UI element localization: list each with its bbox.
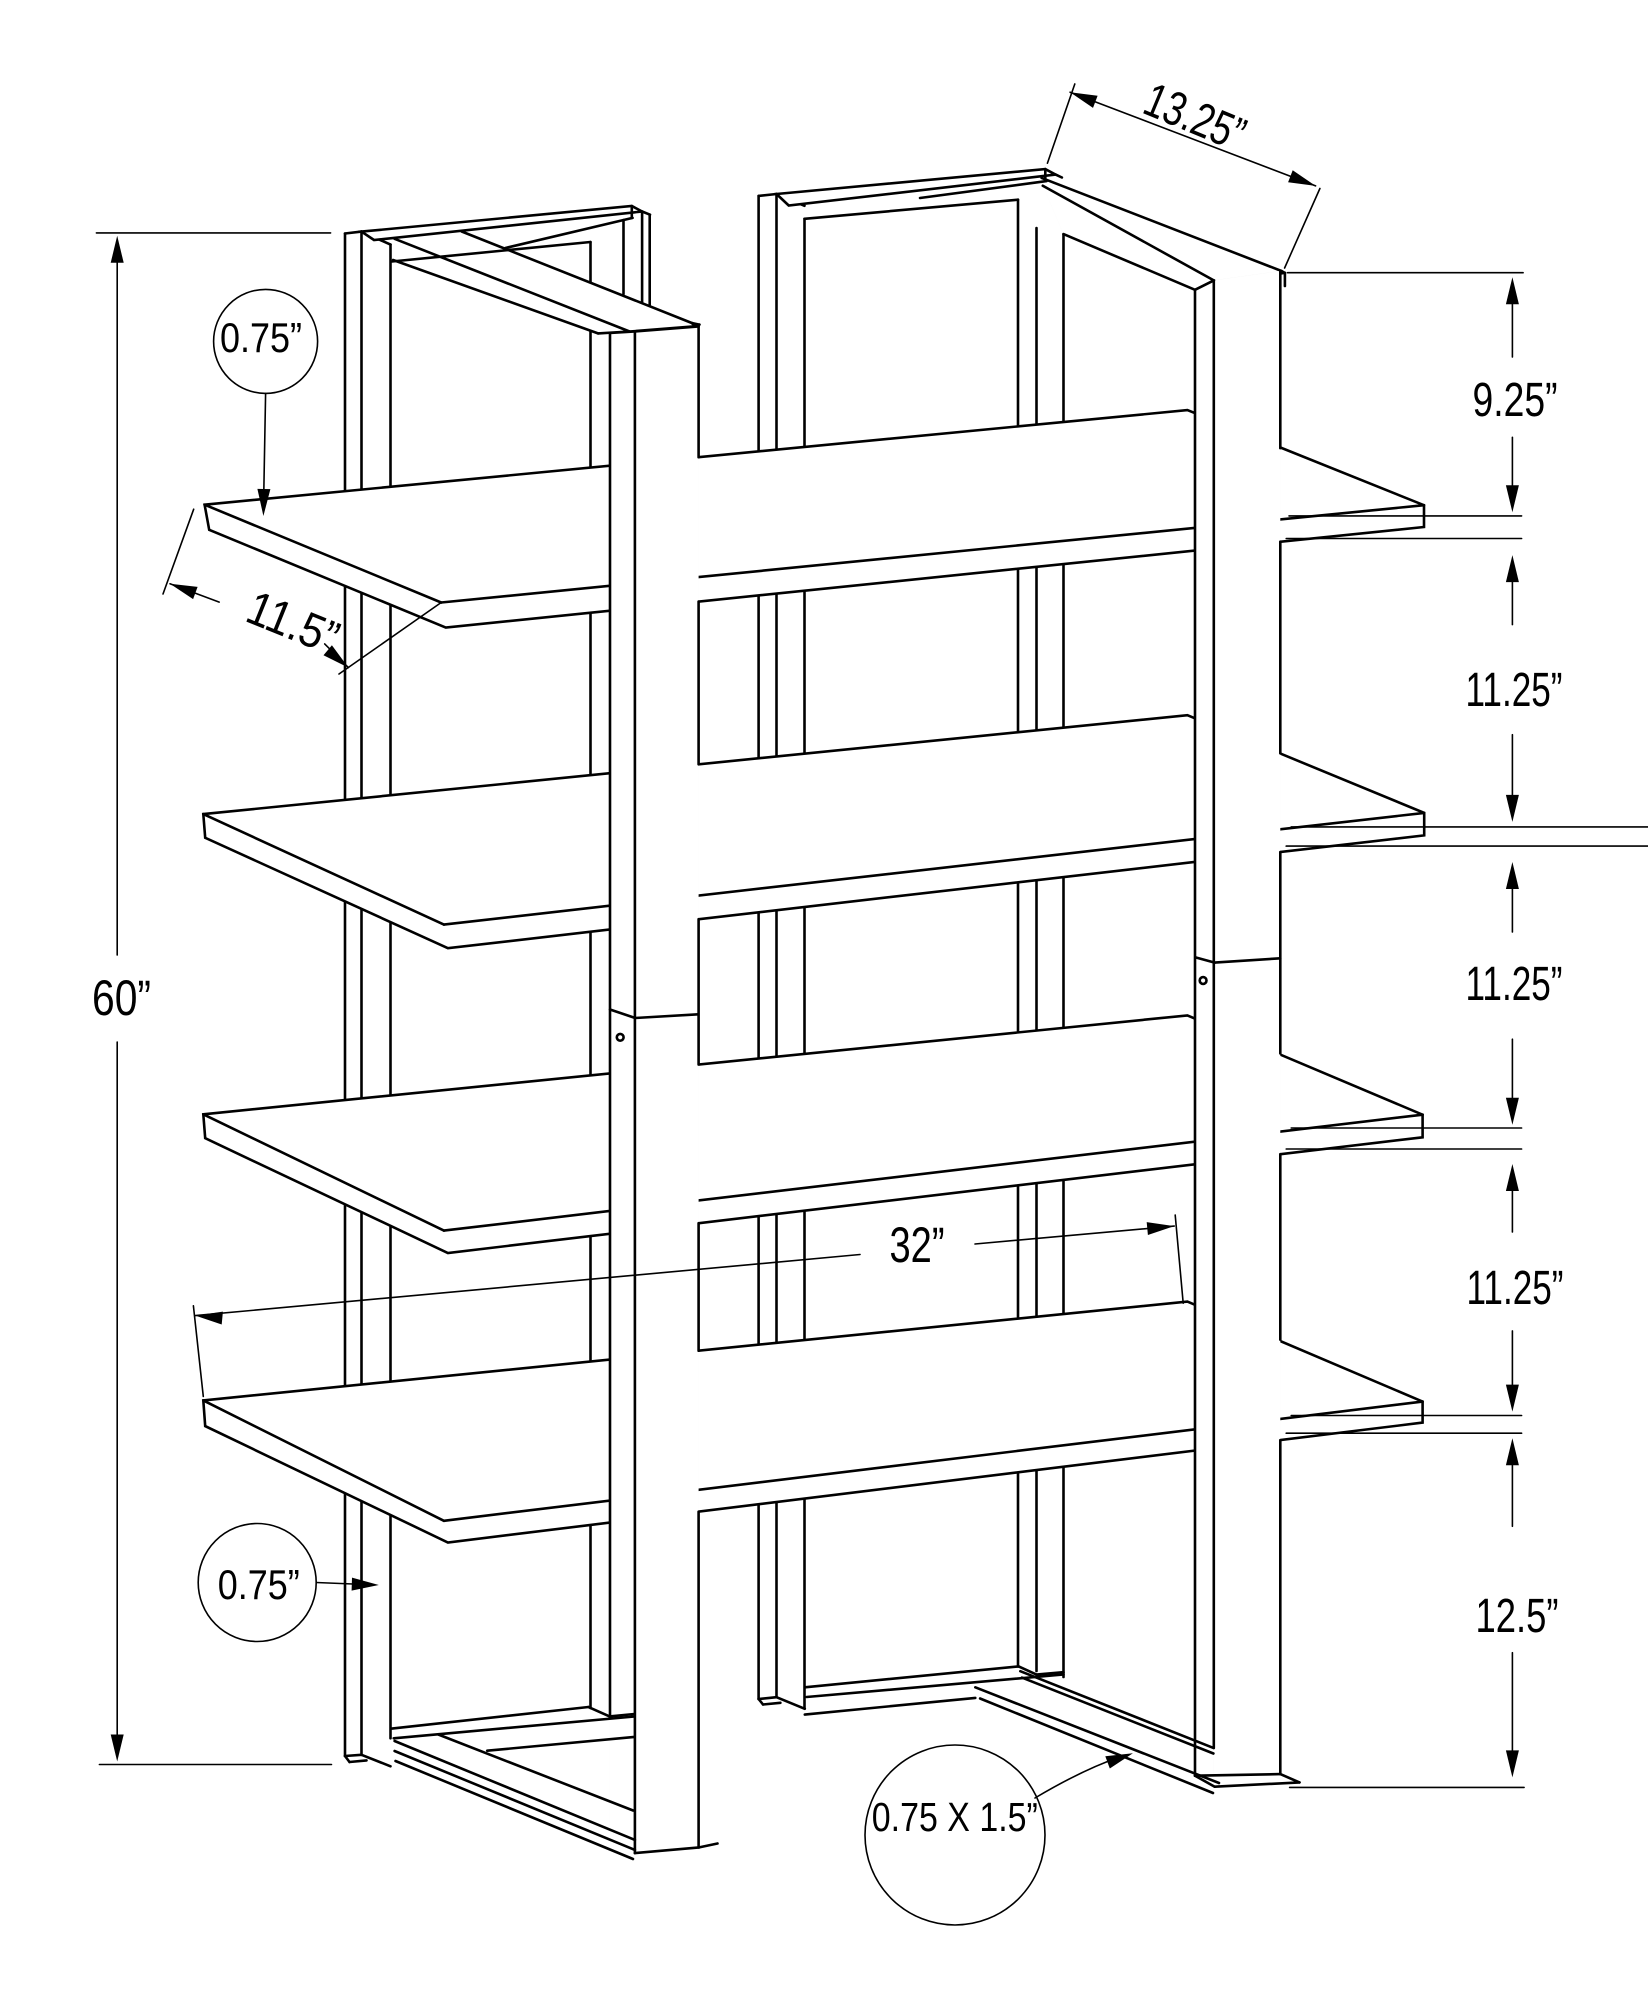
svg-text:0.75 X 1.5”: 0.75 X 1.5”	[872, 1794, 1038, 1840]
svg-text:11.25”: 11.25”	[1466, 958, 1563, 1011]
svg-text:11.25”: 11.25”	[1467, 1262, 1564, 1315]
svg-text:9.25”: 9.25”	[1473, 374, 1558, 427]
svg-text:60”: 60”	[92, 970, 151, 1026]
svg-text:0.75”: 0.75”	[220, 314, 302, 361]
svg-text:11.25”: 11.25”	[1466, 664, 1563, 717]
svg-text:12.5”: 12.5”	[1476, 1590, 1559, 1643]
svg-text:0.75”: 0.75”	[218, 1561, 300, 1608]
svg-text:32”: 32”	[890, 1217, 945, 1273]
